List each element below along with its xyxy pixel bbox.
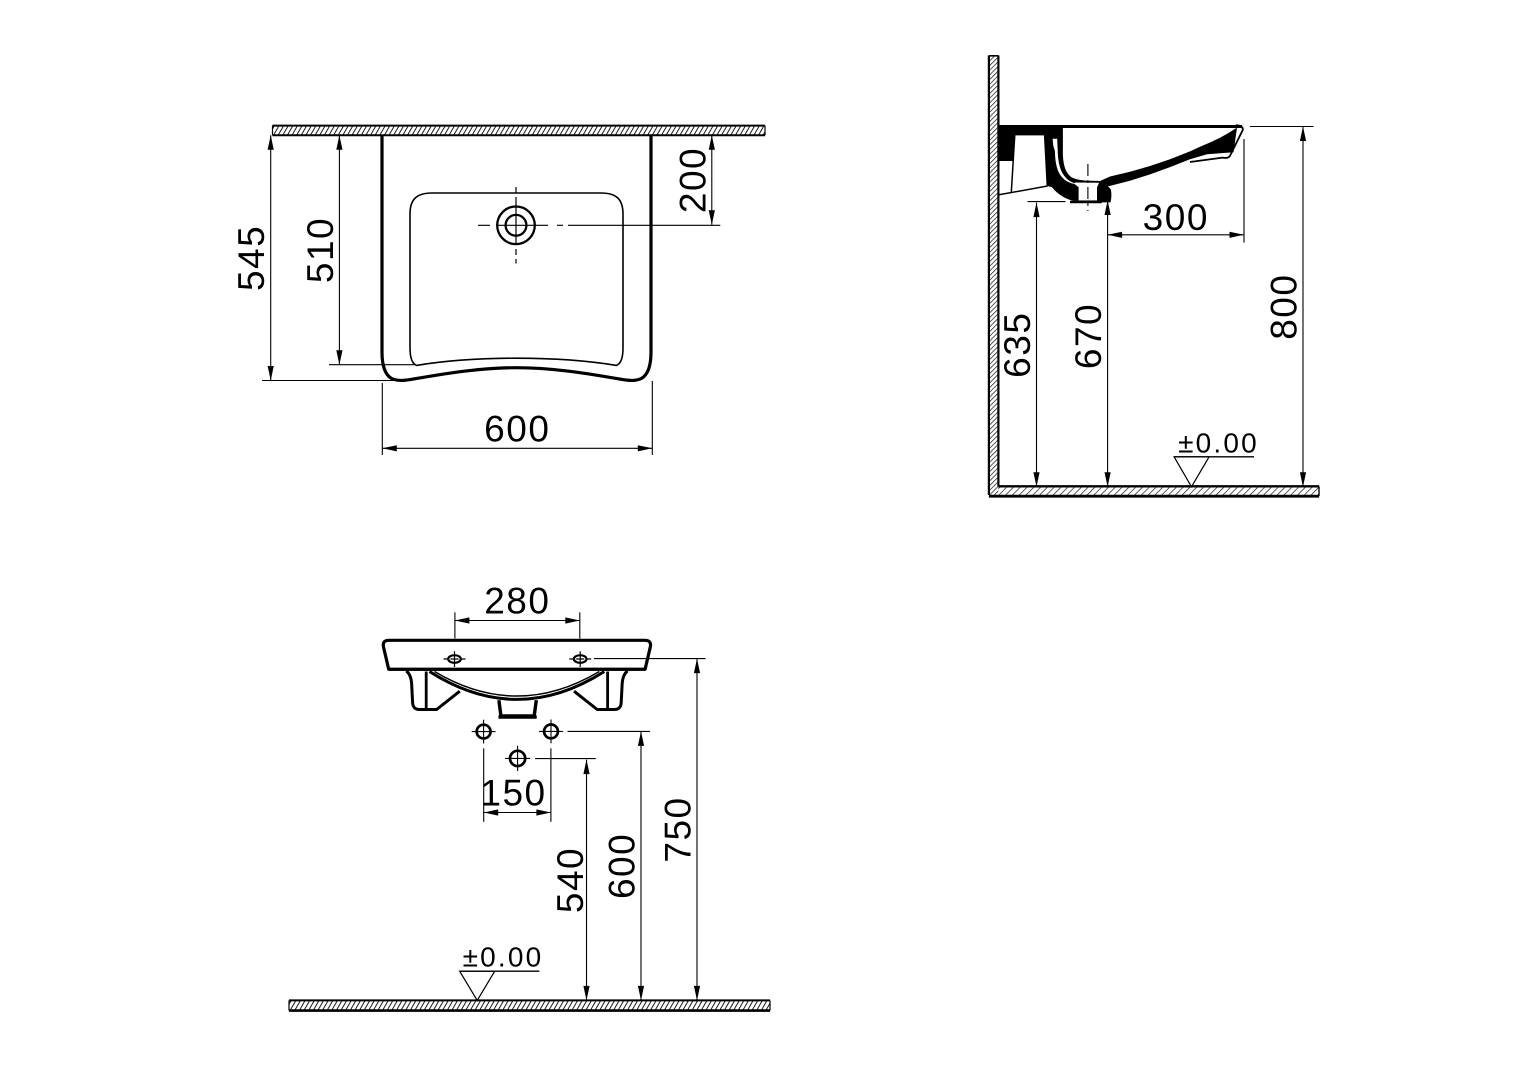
svg-text:635: 635 bbox=[997, 312, 1038, 378]
svg-text:150: 150 bbox=[480, 773, 546, 814]
svg-text:510: 510 bbox=[300, 217, 341, 283]
svg-text:200: 200 bbox=[672, 147, 713, 213]
svg-text:540: 540 bbox=[550, 847, 591, 913]
svg-text:600: 600 bbox=[602, 833, 643, 899]
svg-text:800: 800 bbox=[1264, 274, 1305, 340]
svg-text:300: 300 bbox=[1143, 197, 1209, 238]
svg-text:670: 670 bbox=[1068, 303, 1109, 369]
svg-text:750: 750 bbox=[658, 796, 699, 862]
svg-text:±0.00: ±0.00 bbox=[1178, 427, 1259, 458]
svg-text:280: 280 bbox=[484, 581, 550, 622]
svg-text:±0.00: ±0.00 bbox=[463, 942, 544, 973]
svg-text:545: 545 bbox=[231, 225, 272, 291]
svg-text:600: 600 bbox=[484, 408, 550, 449]
